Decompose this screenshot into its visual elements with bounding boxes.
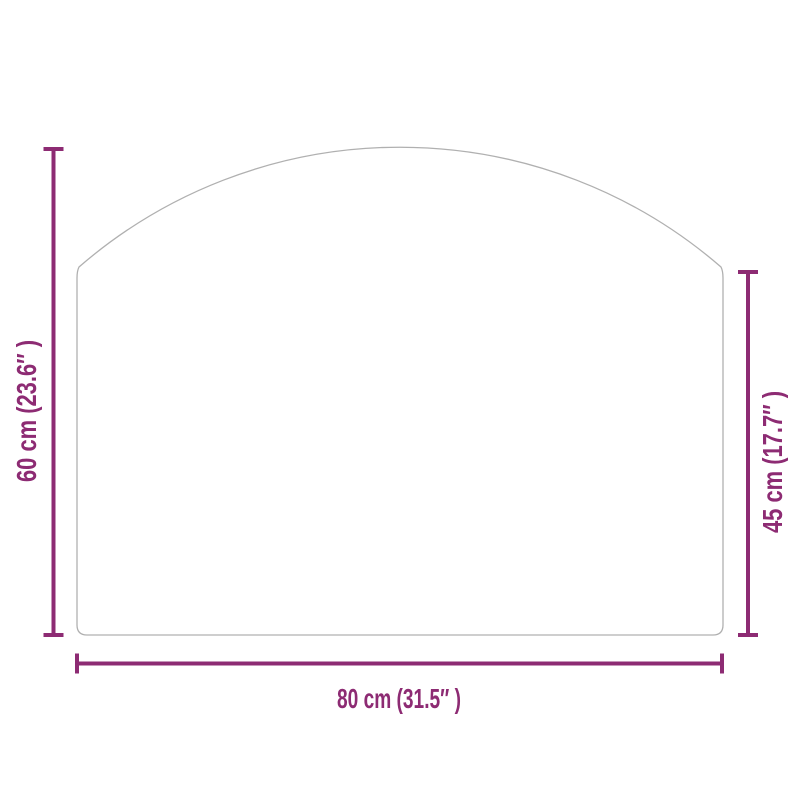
width-label: 80 cm (31.5″ ) [337,683,461,714]
width-dimension-line [77,654,722,674]
dimension-labels: 60 cm (23.6″ ) 45 cm (17.7″ ) 80 cm (31.… [11,340,788,714]
total-height-label: 60 cm (23.6″ ) [11,340,42,482]
glass-plate-outline [77,147,723,635]
side-height-dimension-line [738,272,758,635]
dimension-diagram: 60 cm (23.6″ ) 45 cm (17.7″ ) 80 cm (31.… [0,0,800,800]
dimension-lines [44,149,759,674]
total-height-dimension-line [44,149,64,635]
side-height-label: 45 cm (17.7″ ) [757,391,788,533]
